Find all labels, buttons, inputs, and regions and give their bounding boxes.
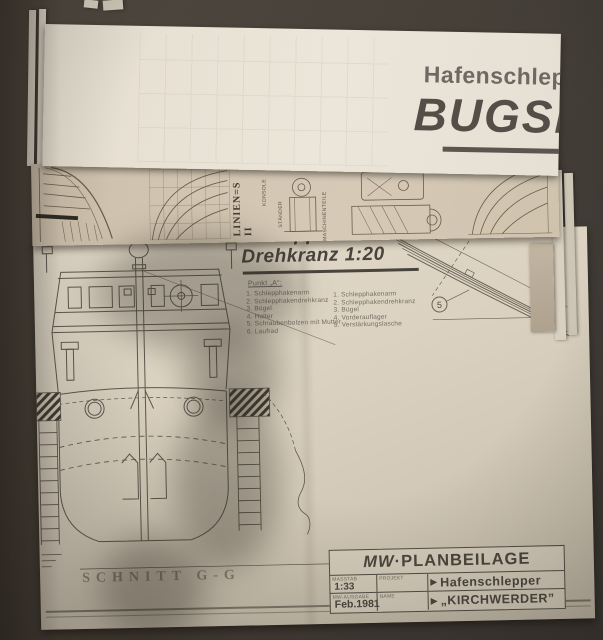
section-label: SCHNITT G-G — [82, 568, 241, 587]
masstab-value: 1:33 — [334, 581, 354, 592]
top-sheet-subtitle: Hafenschlep — [424, 61, 561, 91]
portholes — [85, 397, 203, 418]
top-sheet: Hafenschlep BUGSI — [42, 24, 561, 176]
tan-sheet-hanging-corner — [529, 244, 555, 332]
konsole-label: KONSOLE — [261, 179, 267, 206]
projekt-label: PROJEKT — [379, 575, 404, 582]
heading-line2: Drehkranz 1:20 — [241, 244, 385, 268]
capstan-detail — [351, 163, 441, 235]
bow-curve — [35, 167, 112, 242]
ausgabe-value: Feb.1981 — [335, 598, 380, 611]
ship-front-view-drawing — [33, 237, 350, 575]
staender-label: STÄNDER — [278, 201, 284, 228]
detail-callout-label: 5 — [437, 300, 442, 310]
paper-tab — [84, 0, 99, 9]
hull-outline — [58, 386, 229, 542]
print-bleed-through — [137, 34, 389, 167]
arrow-icon: ▶ — [431, 595, 438, 606]
parts-list-right: 1. Schlepphakenarm2. Schlepphakendrehkra… — [333, 290, 416, 330]
parts-note: Punkt „A“: — [248, 280, 282, 288]
maschinenteile-label: MASCHINENTEILE — [322, 191, 329, 241]
sheet-edge-left — [27, 10, 36, 166]
deck-camber-lines — [59, 434, 228, 470]
deck-apron — [52, 329, 231, 393]
title-block-header-mw: MW — [363, 552, 395, 571]
main-plan-sheet: 5 Schlepphaken- Drehkranz 1:20 Punkt „A“… — [33, 226, 595, 630]
baseline-and-ticks — [42, 549, 340, 570]
paper-tab — [103, 0, 124, 11]
hull-doors — [122, 453, 167, 499]
wheelhouse — [51, 269, 230, 333]
projekt-value: Hafenschlepper — [440, 573, 541, 589]
photo-of-plan-sheets: 5 Schlepphaken- Drehkranz 1:20 Punkt „A“… — [0, 0, 603, 640]
top-sheet-title: BUGSI — [413, 87, 561, 144]
deck-bollards — [61, 339, 222, 380]
linien-vertical-label: LINIEN=S II — [231, 168, 254, 236]
title-underline — [443, 147, 561, 156]
parts-list-left: 1. Schlepphakenarm2. Schlepphakendrehkra… — [246, 289, 341, 337]
searchlight — [164, 280, 199, 313]
name-value: „KIRCHWERDER” — [440, 591, 554, 607]
name-label: NAME — [380, 594, 395, 600]
mast — [123, 241, 158, 411]
arrow-icon: ▶ — [430, 577, 437, 588]
title-block: MW·PLANBEILAGE MASSTAB 1:33 PROJEKT ▶ Ha… — [329, 545, 566, 614]
title-block-row: MW-AUSGABE Feb.1981 NAME ▶ „KIRCHWERDER” — [331, 589, 565, 611]
title-block-header-rest: ·PLANBEILAGE — [394, 550, 530, 571]
